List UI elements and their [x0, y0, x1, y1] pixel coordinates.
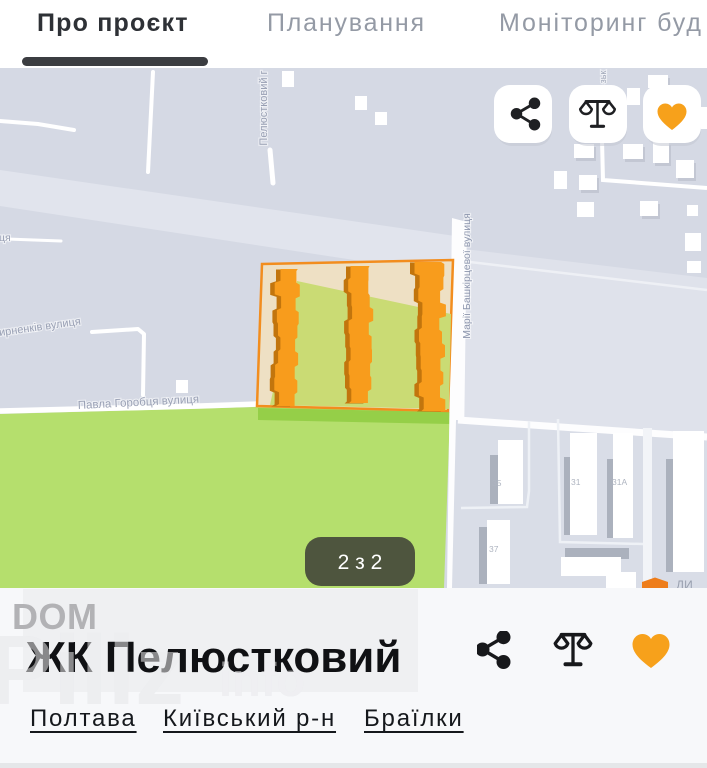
svg-text:35: 35 [492, 478, 502, 488]
svg-text:ця: ця [0, 232, 11, 244]
svg-text:37: 37 [489, 544, 499, 554]
svg-text:Марії Башкірцевої вулиця: Марії Башкірцевої вулиця [461, 213, 473, 339]
svg-text:31А: 31А [612, 477, 627, 487]
svg-text:зьк: зьк [598, 71, 608, 84]
svg-text:2 з 2: 2 з 2 [338, 551, 383, 574]
svg-text:ДИ: ДИ [676, 578, 693, 588]
svg-text:31: 31 [571, 477, 581, 487]
svg-text:Пелюстковий г: Пелюстковий г [258, 70, 270, 145]
